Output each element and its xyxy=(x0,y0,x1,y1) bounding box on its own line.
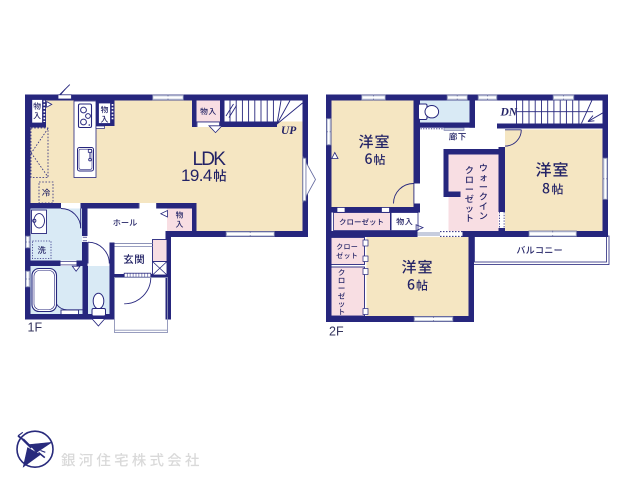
svg-text:2F: 2F xyxy=(329,325,344,339)
svg-text:19.4: 19.4 xyxy=(181,166,212,185)
svg-text:1F: 1F xyxy=(28,320,43,334)
svg-text:UP: UP xyxy=(281,125,297,137)
svg-text:DN: DN xyxy=(500,107,518,119)
